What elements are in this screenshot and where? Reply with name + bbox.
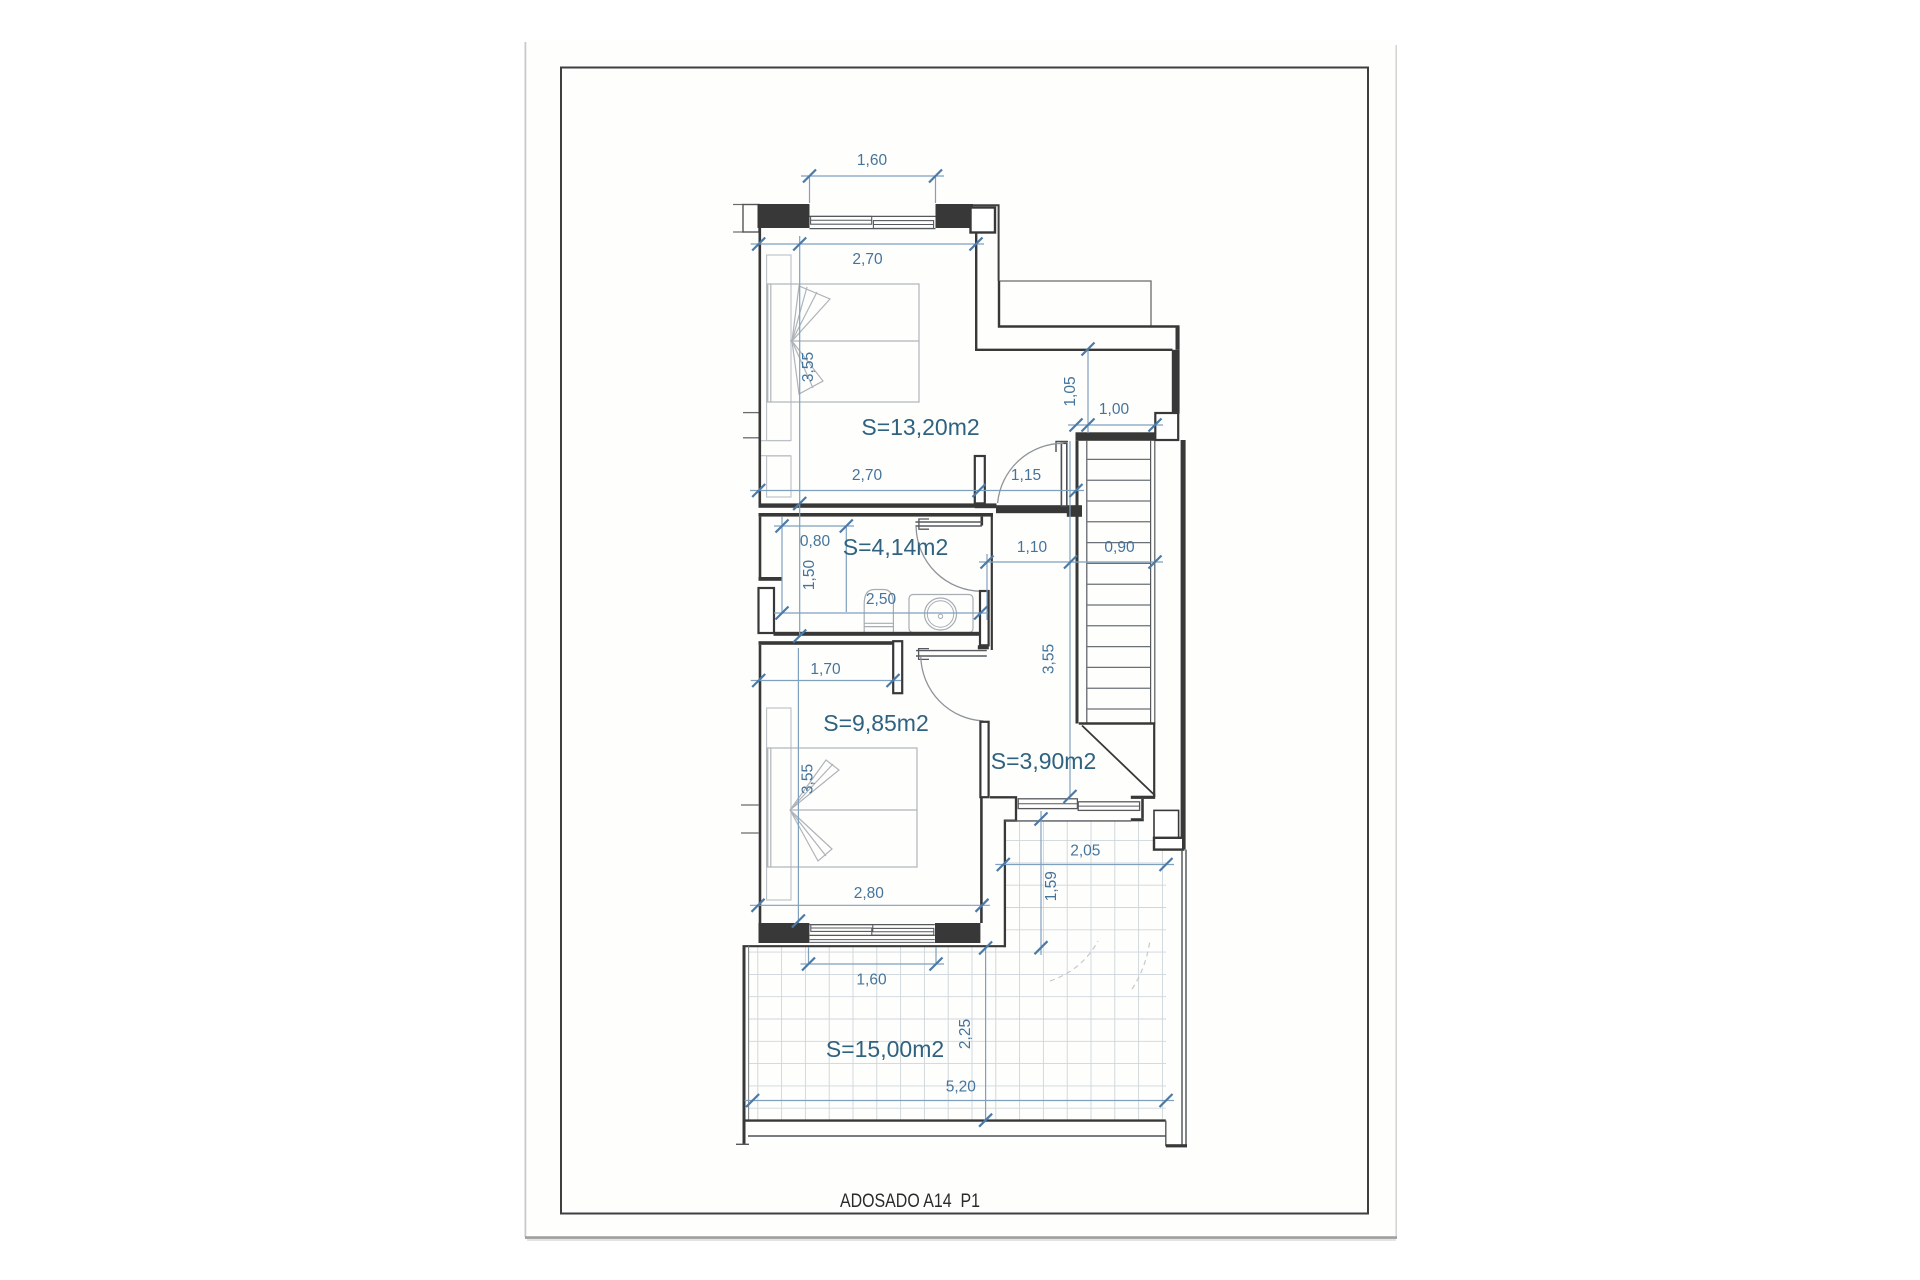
svg-text:1,05: 1,05 [1062,376,1079,406]
svg-text:1,70: 1,70 [810,661,841,678]
svg-text:1,60: 1,60 [856,972,887,989]
svg-text:1,10: 1,10 [1017,539,1048,556]
svg-text:S=15,00m2: S=15,00m2 [826,1036,944,1062]
svg-text:1,60: 1,60 [857,152,888,169]
svg-text:2,25: 2,25 [957,1019,974,1049]
svg-text:1,59: 1,59 [1043,871,1060,901]
svg-text:1,50: 1,50 [801,560,818,591]
svg-text:5,20: 5,20 [946,1079,977,1096]
svg-text:1,00: 1,00 [1099,401,1130,418]
svg-text:0,90: 0,90 [1104,539,1135,556]
svg-text:2,70: 2,70 [852,251,883,268]
svg-text:S=3,90m2: S=3,90m2 [991,748,1097,774]
svg-text:3,55: 3,55 [800,352,817,382]
svg-text:S=13,20m2: S=13,20m2 [861,414,979,440]
svg-text:2,80: 2,80 [854,885,885,902]
svg-text:2,70: 2,70 [852,467,883,484]
svg-text:0,80: 0,80 [800,533,831,550]
svg-text:3,55: 3,55 [1041,644,1058,674]
svg-text:2,50: 2,50 [866,591,897,608]
svg-text:S=4,14m2: S=4,14m2 [843,534,949,560]
svg-text:2,05: 2,05 [1070,843,1100,860]
svg-text:1,15: 1,15 [1011,467,1041,484]
svg-text:3,55: 3,55 [800,764,817,794]
svg-text:S=9,85m2: S=9,85m2 [823,710,929,736]
svg-text:ADOSADO A14 P1: ADOSADO A14 P1 [840,1190,980,1212]
